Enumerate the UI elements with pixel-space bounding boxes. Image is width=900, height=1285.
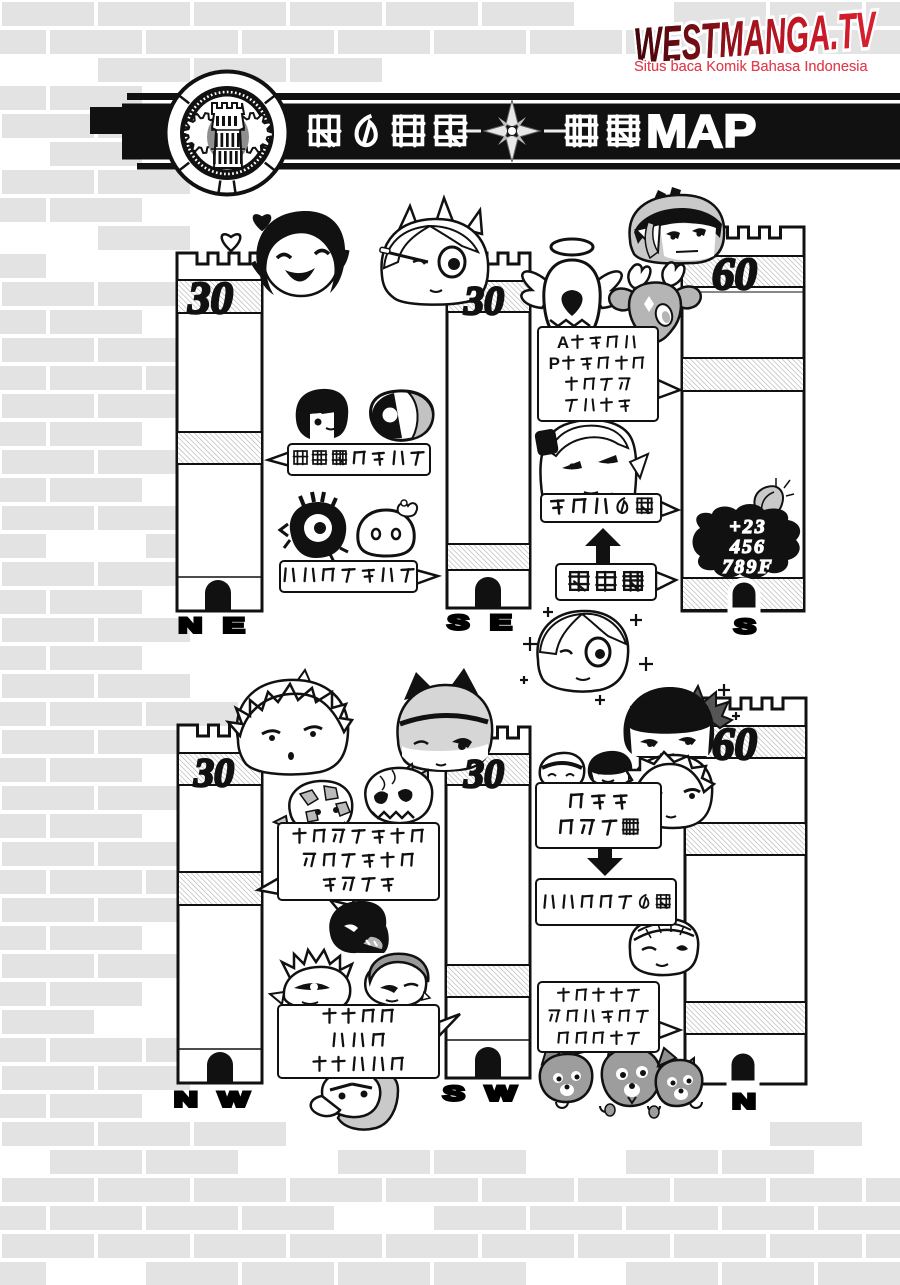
svg-text:Situs baca Komik Bahasa Indone: Situs baca Komik Bahasa Indonesia bbox=[634, 59, 869, 75]
